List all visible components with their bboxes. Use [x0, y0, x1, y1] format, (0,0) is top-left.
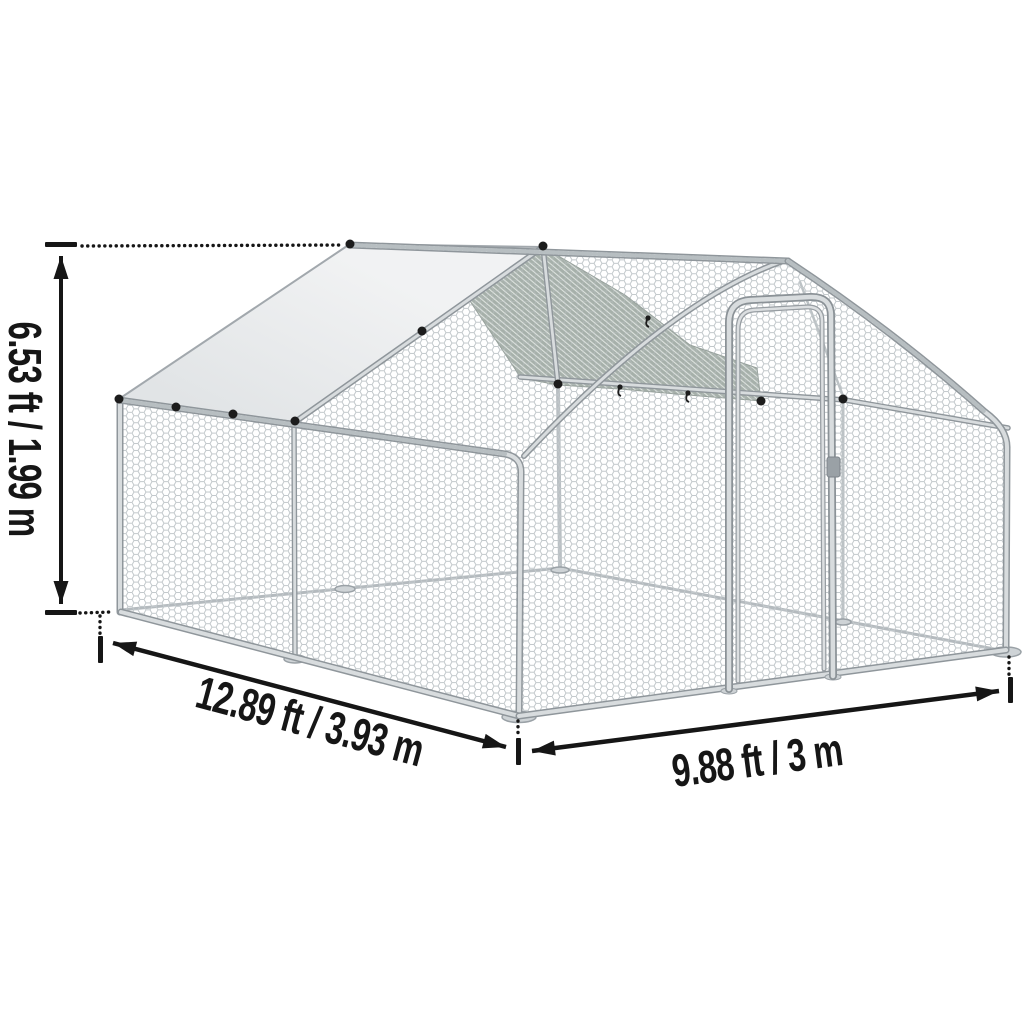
- chicken-run-illustration: [0, 0, 1024, 1024]
- door-latch: [827, 457, 840, 477]
- height-dimension-label: 6.53 ft / 1.99 m: [0, 322, 52, 537]
- chicken-run-dimension-diagram: 6.53 ft / 1.99 m 12.89 ft / 3.93 m 9.88 …: [0, 0, 1024, 1024]
